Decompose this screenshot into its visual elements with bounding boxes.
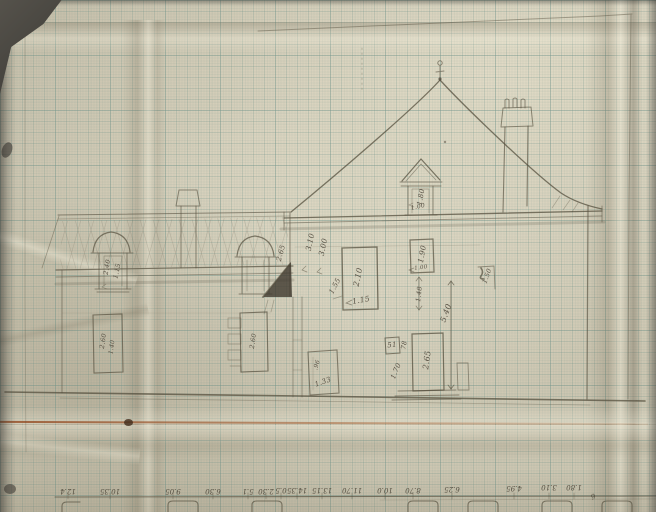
scale-value: 0.5 [275,486,286,494]
cornice-right [281,206,604,399]
scale-value: 6.30 [205,487,221,495]
scale-value: 3.10 [541,483,557,491]
right-pavilion-roof [291,48,602,212]
left-wing-roof [42,212,293,393]
bottom-inverted-strip [55,493,656,512]
scale-value: 13.15 [312,486,332,494]
scale-value: 12.4 [60,487,76,495]
dim-box-width: 78 [399,340,408,350]
scale-value: 2.30 [258,487,274,495]
scale-value: 5.1 [242,487,253,495]
scale-value: 1.80 [566,483,582,491]
scale-value: 9.05 [165,487,181,495]
scale-value: 10.0 [377,486,393,494]
scale-value: 8.70 [405,486,421,494]
total-height-dimension [448,281,454,389]
scale-value: 14.35 [287,486,307,494]
scale-value: 4.95 [506,484,522,492]
scale-value: 11.70 [342,486,362,494]
photo-of-architectural-sketch: 2.40 1.15 2.65 3.10 3.00 1.80 1.00 2.10 … [0,0,656,512]
scale-value: 6.25 [444,485,460,493]
right-wall-edge [587,206,588,399]
dim-box-51: 51 [387,341,397,350]
post [457,363,469,390]
pencil-elevation-drawing [0,0,656,512]
scale-value: 10.35 [100,487,120,495]
dim-window-b-below: 1.48 [414,286,424,302]
window-c [308,350,339,395]
